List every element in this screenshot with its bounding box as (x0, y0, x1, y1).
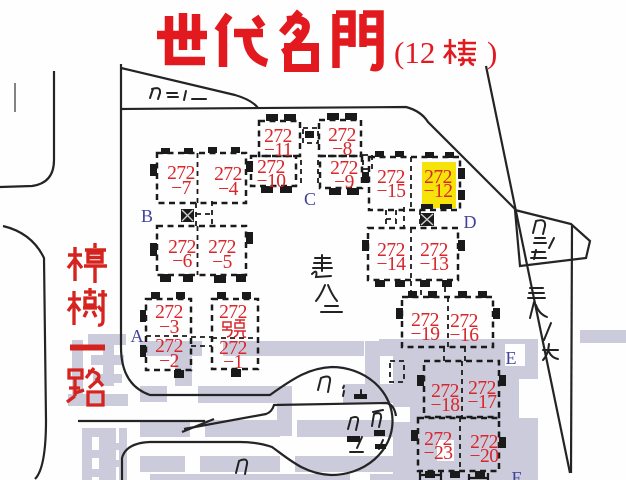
svg-text:−10: −10 (257, 171, 286, 192)
svg-text:−3: −3 (159, 317, 179, 338)
svg-text:−20: −20 (470, 446, 499, 467)
svg-text:−5: −5 (212, 252, 232, 273)
svg-text:−2: −2 (159, 351, 179, 372)
svg-text:C: C (304, 189, 316, 209)
svg-text:−15: −15 (377, 181, 406, 202)
svg-text:−7: −7 (171, 178, 191, 199)
svg-text:(12: (12 (394, 35, 435, 70)
svg-text:D: D (464, 212, 477, 232)
svg-text:−16: −16 (450, 325, 480, 346)
svg-text:−17: −17 (468, 392, 498, 413)
svg-text:E: E (506, 348, 517, 368)
svg-text:B: B (141, 206, 153, 226)
svg-text:−4: −4 (218, 179, 238, 200)
svg-text:): ) (487, 35, 497, 70)
svg-text:−18: −18 (431, 395, 460, 416)
svg-text:E: E (512, 468, 523, 480)
svg-text:−9: −9 (334, 172, 354, 193)
svg-text:A: A (131, 326, 144, 346)
svg-text:−1: −1 (223, 352, 243, 373)
svg-text:−23: −23 (424, 443, 453, 464)
svg-text:−13: −13 (420, 254, 449, 275)
svg-text:−12: −12 (424, 181, 453, 202)
svg-text:−14: −14 (377, 254, 407, 275)
svg-text:−19: −19 (411, 324, 440, 345)
svg-text:−8: −8 (332, 139, 352, 160)
svg-text:−6: −6 (172, 251, 192, 272)
